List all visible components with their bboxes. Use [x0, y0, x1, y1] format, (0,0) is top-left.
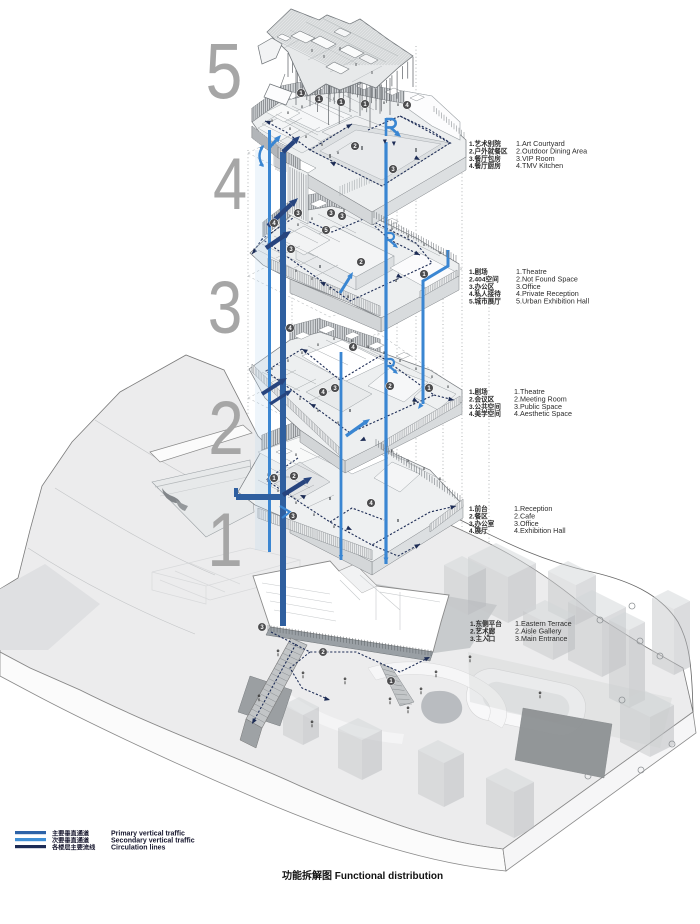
svg-text:4.Aesthetic Space: 4.Aesthetic Space [514, 409, 572, 418]
svg-text:5.Urban Exhibition Hall: 5.Urban Exhibition Hall [516, 297, 590, 306]
svg-text:1.东侧平台: 1.东侧平台 [470, 619, 502, 628]
svg-text:次要垂直通道: 次要垂直通道 [52, 837, 90, 845]
svg-text:3.办公区: 3.办公区 [469, 282, 495, 291]
svg-text:主要垂直通道: 主要垂直通道 [52, 830, 90, 838]
svg-text:3.餐厅包房: 3.餐厅包房 [469, 154, 501, 163]
svg-text:1.剧场: 1.剧场 [469, 267, 488, 276]
svg-text:4.Exhibition Hall: 4.Exhibition Hall [514, 526, 566, 535]
svg-text:2.户外就餐区: 2.户外就餐区 [469, 146, 508, 155]
svg-text:4.TMV Kitchen: 4.TMV Kitchen [516, 161, 563, 170]
svg-text:4: 4 [213, 144, 247, 225]
svg-text:2.艺术廊: 2.艺术廊 [470, 626, 496, 635]
svg-text:4.美学空间: 4.美学空间 [469, 409, 501, 418]
svg-text:2.404空间: 2.404空间 [469, 274, 499, 283]
svg-text:Circulation lines: Circulation lines [111, 845, 166, 852]
svg-text:4.展厅: 4.展厅 [469, 526, 488, 535]
svg-text:Secondary vertical traffic: Secondary vertical traffic [111, 838, 195, 845]
svg-text:5.城市展厅: 5.城市展厅 [469, 297, 501, 306]
svg-text:1.剧场: 1.剧场 [469, 387, 488, 396]
svg-text:3.公共空间: 3.公共空间 [469, 402, 501, 411]
svg-text:2.餐区: 2.餐区 [469, 511, 488, 520]
svg-text:各楼层主要流线: 各楼层主要流线 [51, 844, 96, 852]
svg-text:1: 1 [207, 497, 243, 583]
svg-text:1.艺术别院: 1.艺术别院 [469, 139, 501, 148]
svg-text:5: 5 [206, 28, 243, 116]
svg-text:3.Main Entrance: 3.Main Entrance [515, 634, 567, 643]
svg-text:2.会议区: 2.会议区 [469, 394, 495, 403]
svg-text:3: 3 [208, 267, 243, 349]
svg-text:4.餐厅厨房: 4.餐厅厨房 [469, 161, 501, 170]
svg-text:3.办公室: 3.办公室 [469, 519, 495, 528]
svg-text:4.私人接待: 4.私人接待 [469, 289, 501, 298]
svg-text:2: 2 [208, 385, 244, 471]
svg-text:3.主入口: 3.主入口 [470, 634, 495, 643]
svg-text:功能拆解图 Functional distribution: 功能拆解图 Functional distribution [282, 869, 443, 882]
svg-text:1.前台: 1.前台 [469, 504, 488, 513]
svg-text:Primary vertical traffic: Primary vertical traffic [111, 831, 185, 838]
